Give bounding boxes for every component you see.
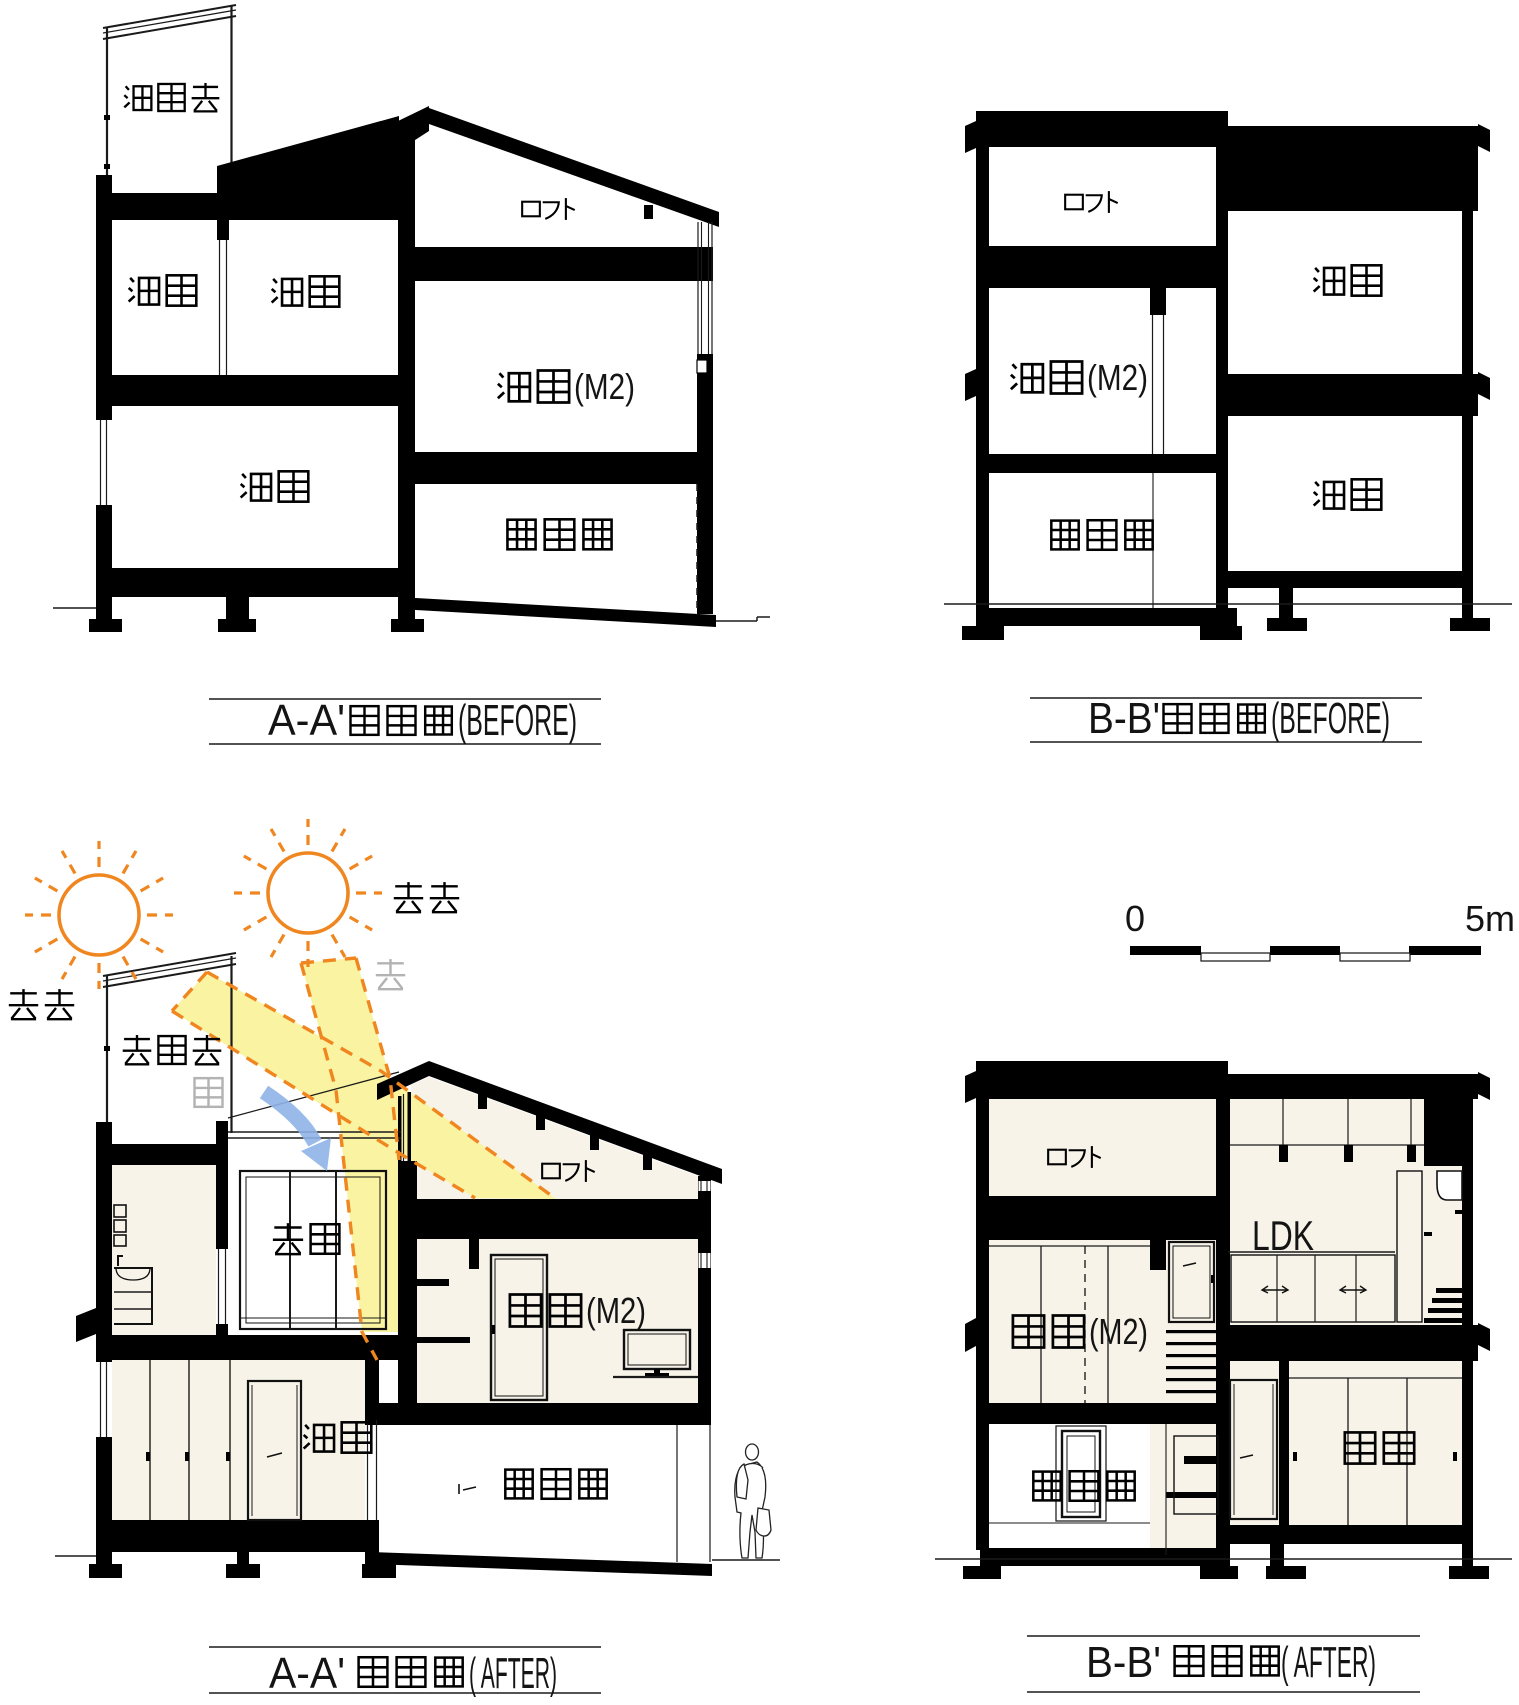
svg-text:0: 0 [1125, 898, 1145, 939]
svg-text:LDK: LDK [1252, 1212, 1314, 1259]
svg-text:(M2): (M2) [574, 366, 635, 407]
svg-text:(BEFORE): (BEFORE) [1271, 694, 1390, 743]
svg-text:(M2): (M2) [586, 1290, 646, 1331]
svg-text:(BEFORE): (BEFORE) [458, 696, 577, 745]
svg-text:B-B': B-B' [1086, 1638, 1161, 1687]
svg-text:( AFTER): ( AFTER) [1281, 1638, 1376, 1687]
svg-text:( AFTER): ( AFTER) [469, 1649, 557, 1698]
svg-text:A-A': A-A' [268, 696, 345, 745]
svg-text:5m: 5m [1465, 898, 1515, 939]
svg-text:(M2): (M2) [1087, 357, 1148, 398]
svg-text:(M2): (M2) [1089, 1311, 1148, 1352]
svg-text:B-B': B-B' [1088, 694, 1160, 743]
svg-text:A-A': A-A' [269, 1649, 345, 1698]
